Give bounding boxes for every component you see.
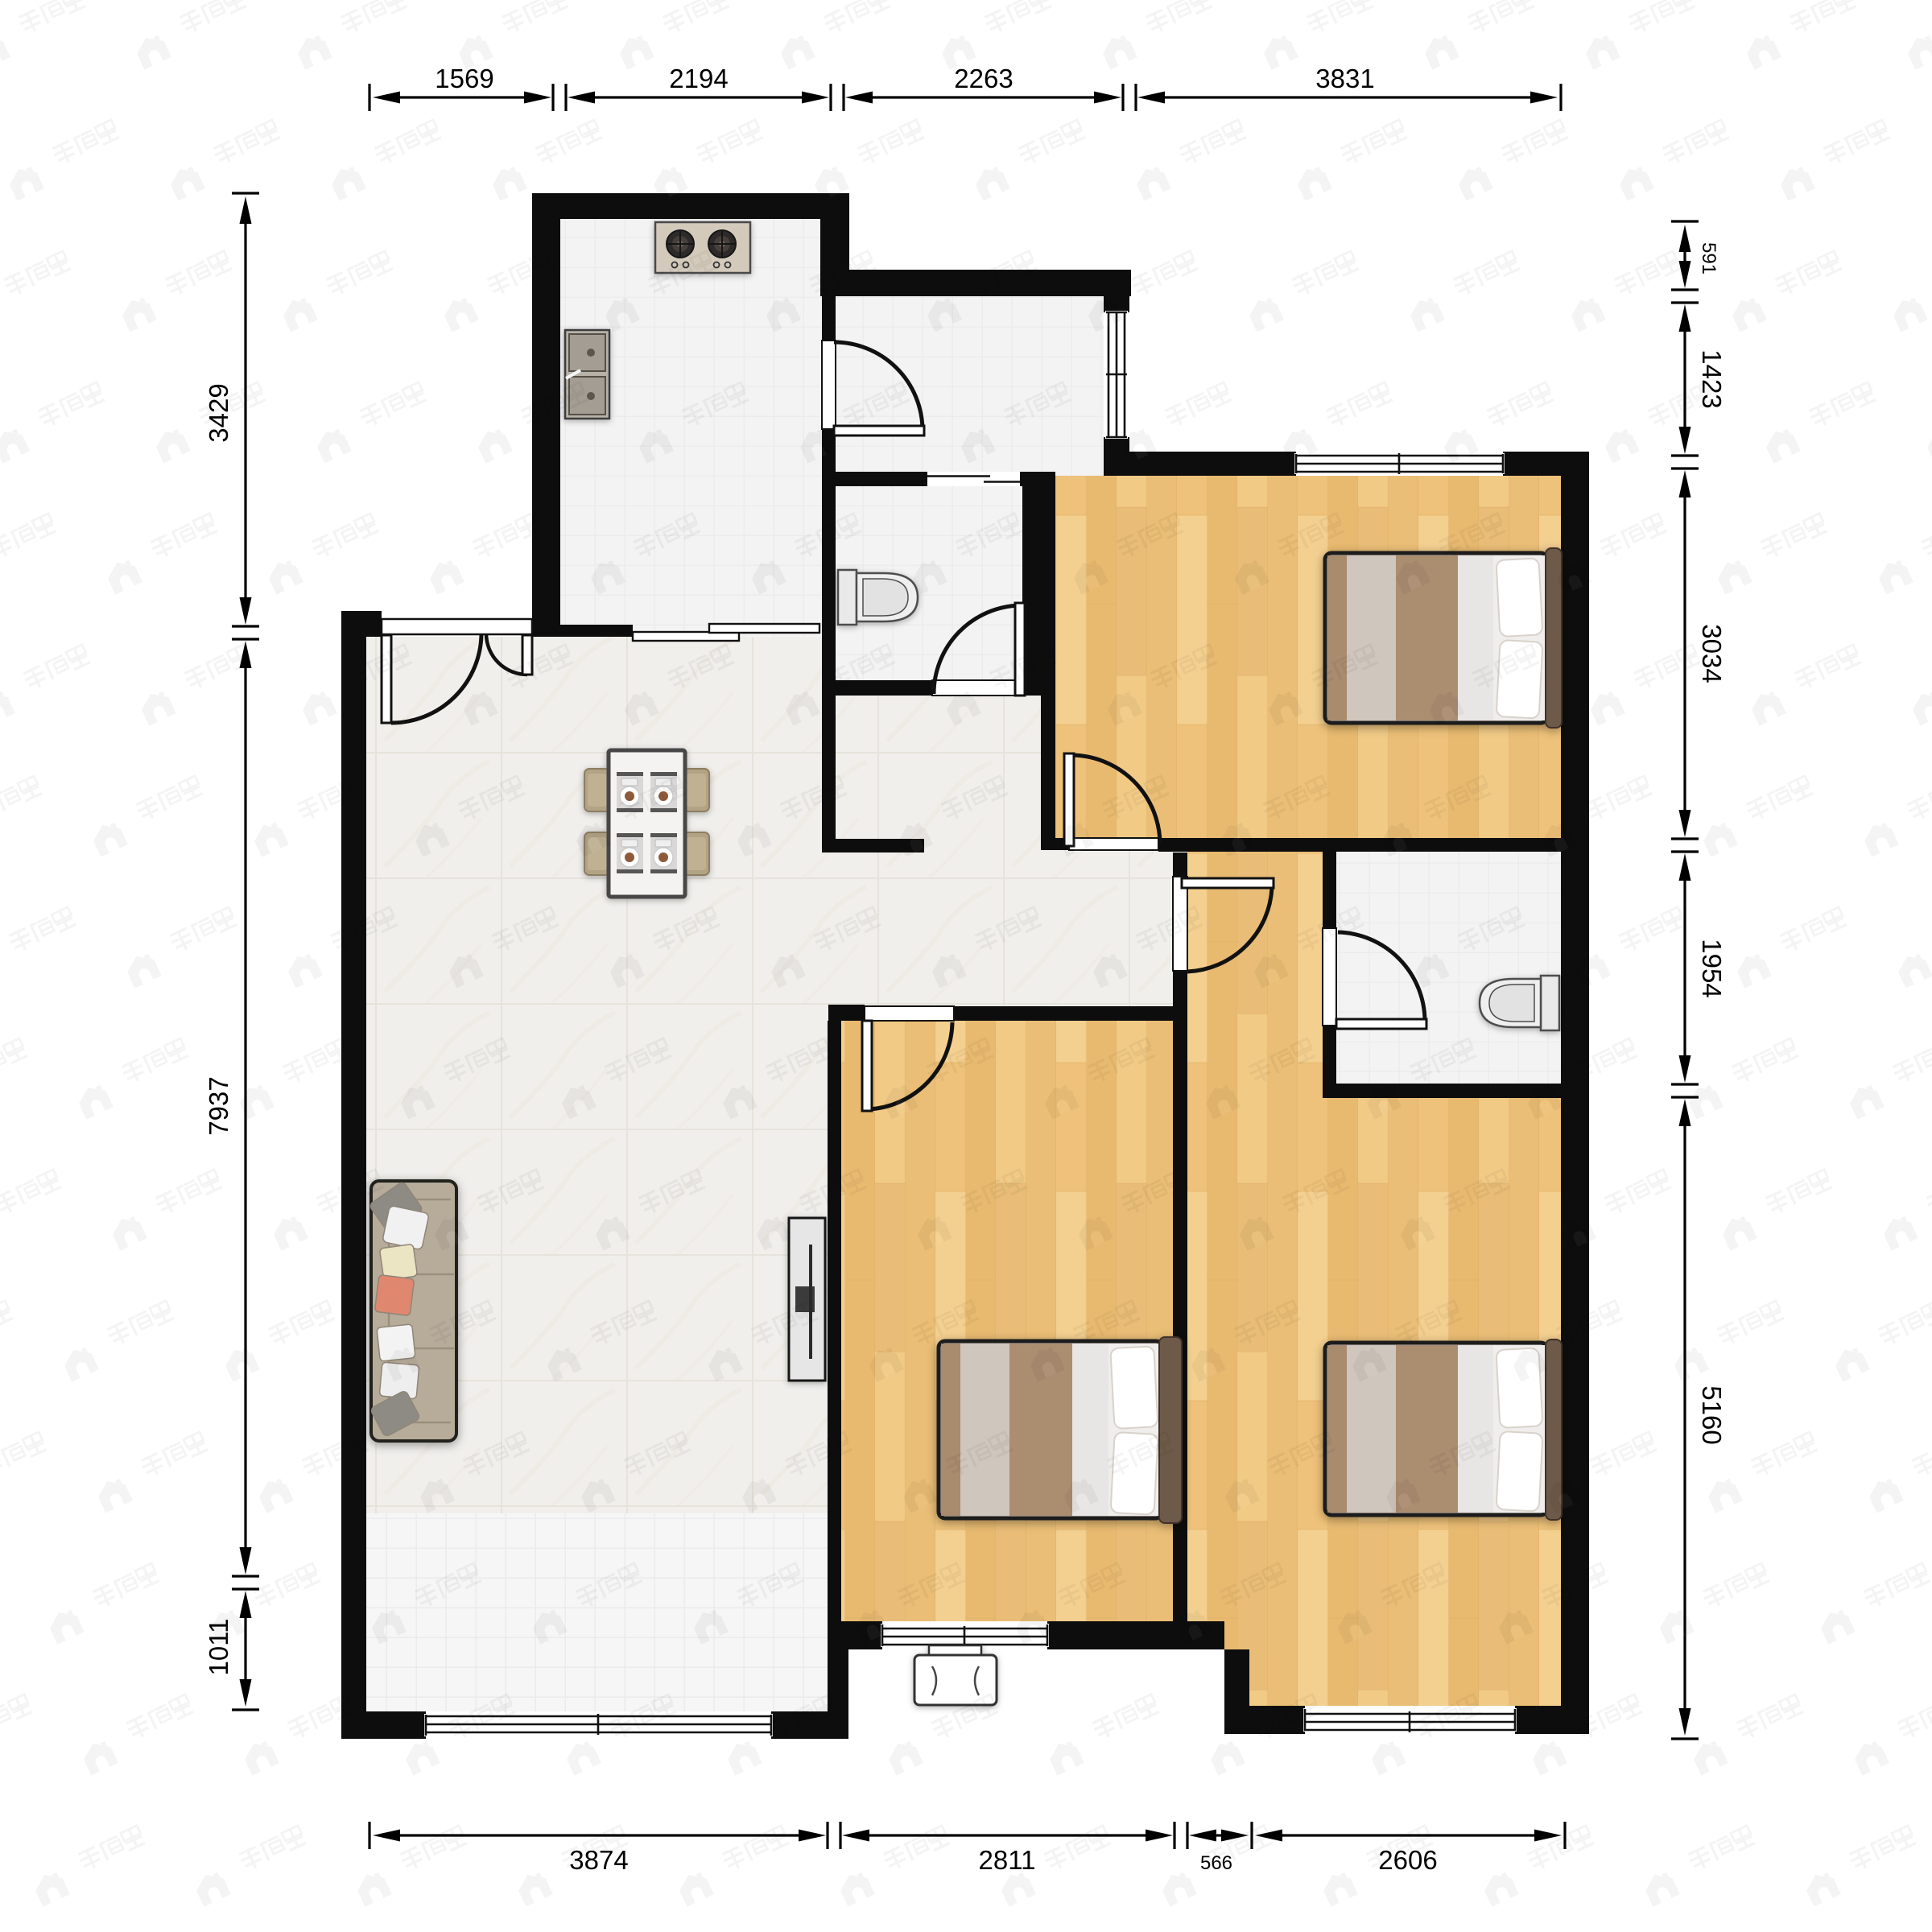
svg-text:3034: 3034	[1697, 624, 1727, 683]
svg-text:5160: 5160	[1697, 1385, 1727, 1444]
svg-text:591: 591	[1698, 242, 1719, 275]
svg-text:2811: 2811	[979, 1845, 1036, 1875]
svg-text:3831: 3831	[1315, 64, 1374, 93]
svg-text:1954: 1954	[1697, 939, 1727, 997]
svg-text:7937: 7937	[204, 1076, 233, 1135]
svg-text:2194: 2194	[669, 64, 728, 93]
svg-text:1569: 1569	[435, 64, 493, 93]
svg-text:2263: 2263	[954, 64, 1013, 93]
